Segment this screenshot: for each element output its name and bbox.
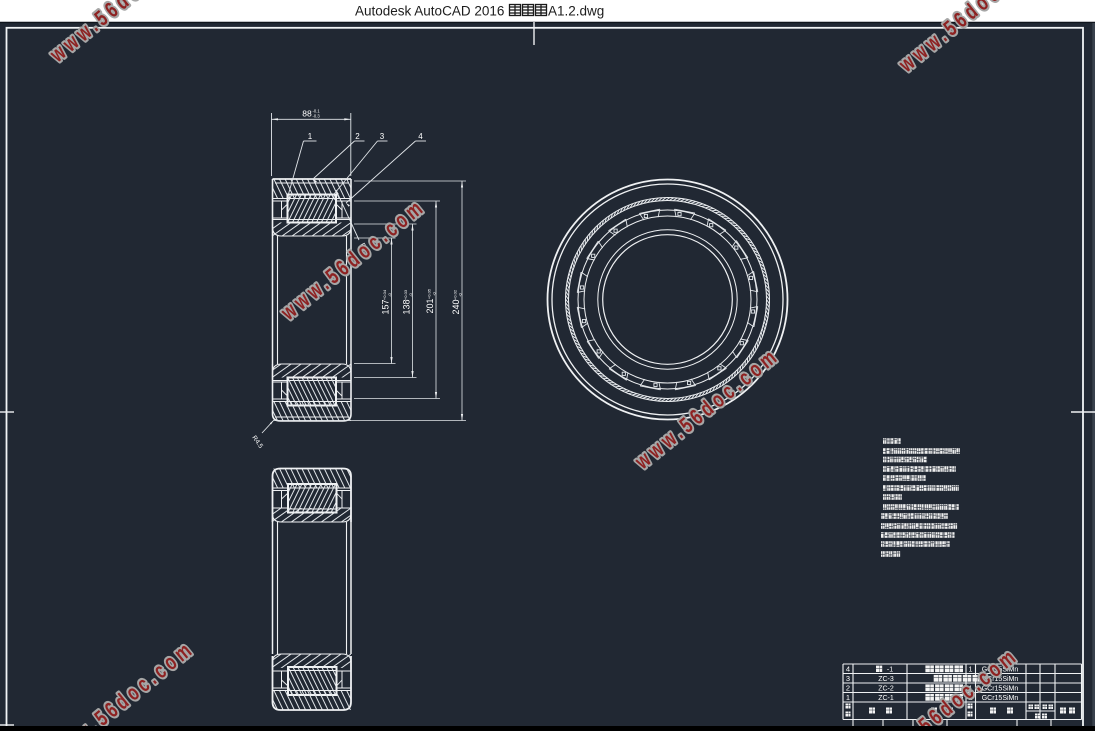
svg-text:4: 4 bbox=[418, 132, 423, 141]
svg-text:-1: -1 bbox=[887, 666, 893, 673]
svg-text:2: 2 bbox=[846, 683, 850, 692]
svg-text:-0.3: -0.3 bbox=[313, 114, 321, 119]
svg-text:157: 157 bbox=[381, 299, 391, 314]
svg-text:4: 4 bbox=[846, 664, 850, 673]
svg-text:3: 3 bbox=[846, 674, 850, 683]
svg-text:201: 201 bbox=[425, 298, 435, 313]
svg-text:2: 2 bbox=[355, 132, 360, 141]
svg-text:ZC-3: ZC-3 bbox=[878, 676, 894, 683]
svg-text:Autodesk AutoCAD 2016: Autodesk AutoCAD 2016 bbox=[355, 4, 504, 19]
svg-text:138: 138 bbox=[402, 299, 412, 314]
svg-text:3: 3 bbox=[380, 132, 385, 141]
svg-text:A1.2.dwg: A1.2.dwg bbox=[548, 4, 604, 19]
svg-text:ZC-1: ZC-1 bbox=[878, 695, 894, 702]
svg-text:88: 88 bbox=[302, 109, 312, 119]
svg-text:1: 1 bbox=[308, 132, 313, 141]
svg-text:ZC-2: ZC-2 bbox=[878, 685, 894, 692]
svg-text:240: 240 bbox=[451, 299, 461, 314]
svg-text:GCr15SiMn: GCr15SiMn bbox=[982, 695, 1019, 702]
svg-text:1: 1 bbox=[846, 693, 850, 702]
